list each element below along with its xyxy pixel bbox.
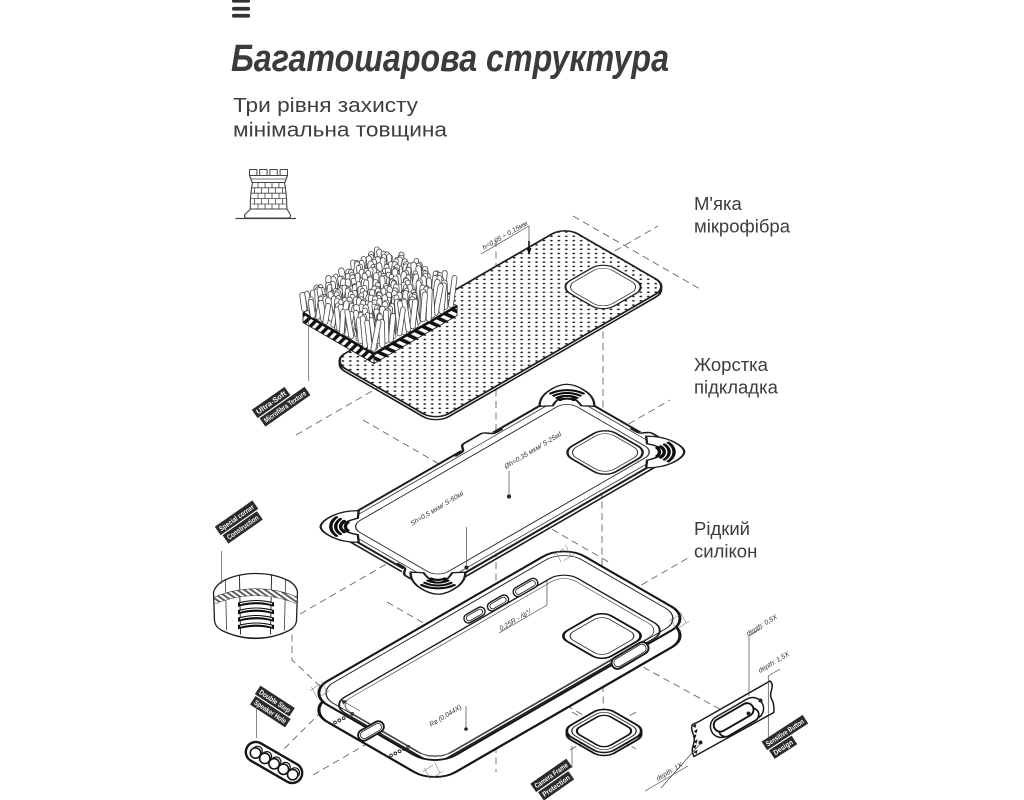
svg-text:М'якамікрофібра: М'якамікрофібра	[694, 193, 791, 237]
svg-text:Багатошарова структура: Багатошарова структура	[231, 38, 669, 80]
svg-text:depth: 1X: depth: 1X	[655, 761, 684, 782]
svg-text:мінімальна товщина: мінімальна товщина	[233, 119, 448, 142]
svg-text:depth: 0,5X: depth: 0,5X	[745, 614, 779, 638]
svg-text:Рідкийсилікон: Рідкийсилікон	[694, 518, 757, 562]
svg-text:Жорсткапідкладка: Жорсткапідкладка	[694, 354, 779, 398]
svg-text:Три рівня захисту: Три рівня захисту	[233, 94, 419, 117]
svg-text:h=0,05 ÷ 0,15мм: h=0,05 ÷ 0,15мм	[482, 220, 530, 252]
svg-text:depth: 1,5X: depth: 1,5X	[757, 651, 791, 675]
